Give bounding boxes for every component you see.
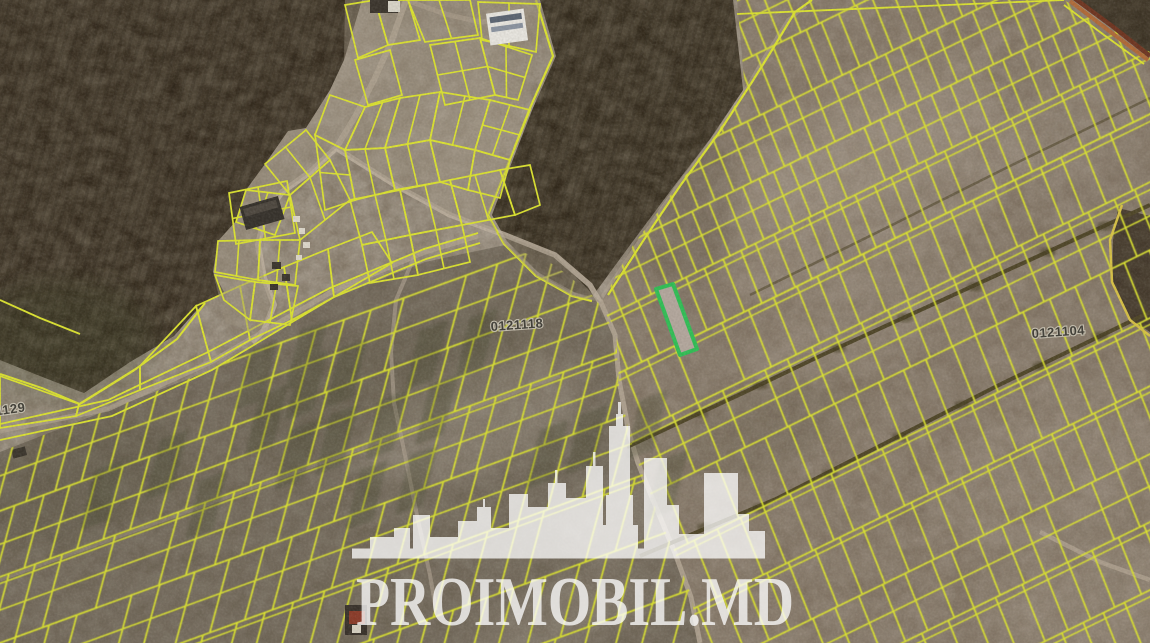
svg-text:PROIMOBIL.MD: PROIMOBIL.MD: [356, 564, 794, 641]
